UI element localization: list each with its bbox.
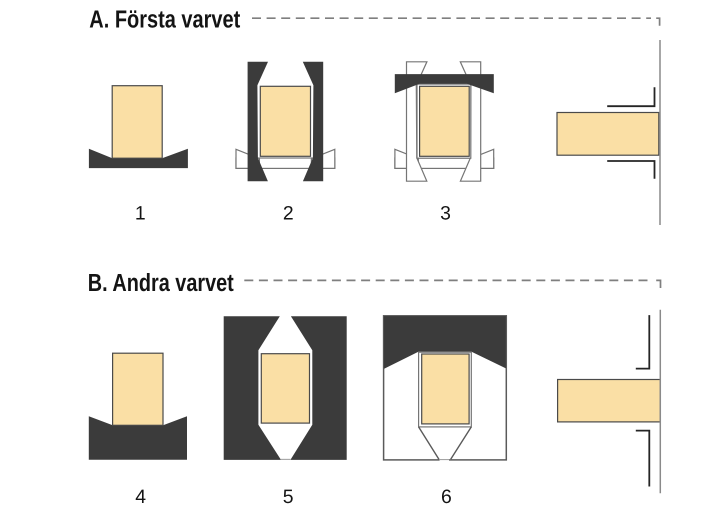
svg-text:2: 2: [283, 203, 294, 225]
svg-text:6: 6: [441, 486, 452, 508]
svg-text:A. Första varvet: A. Första varvet: [89, 6, 240, 33]
svg-text:1: 1: [135, 203, 146, 225]
svg-text:B. Andra varvet: B. Andra varvet: [88, 270, 234, 297]
svg-text:5: 5: [283, 486, 294, 508]
svg-text:4: 4: [135, 486, 146, 508]
svg-text:3: 3: [440, 203, 451, 225]
